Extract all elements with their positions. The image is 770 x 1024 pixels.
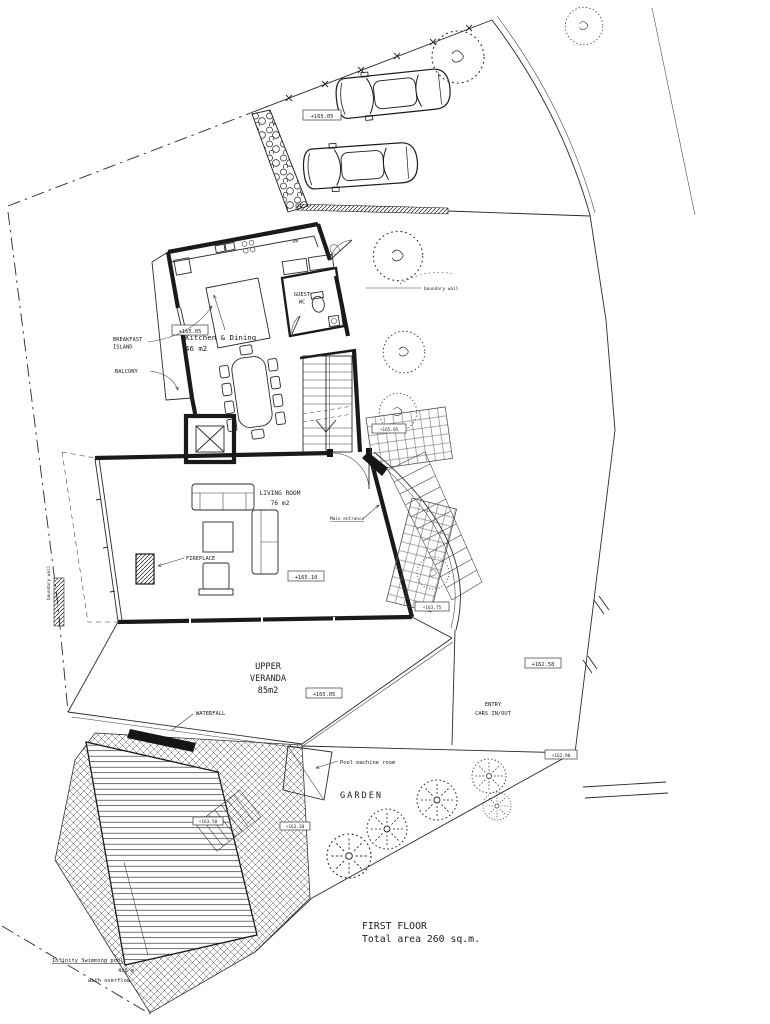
elevation-marker-terrace: +165.05 (372, 424, 406, 433)
sofa-horizontal (192, 484, 254, 510)
elevation-value: +163.30 (286, 824, 305, 830)
retaining-wall (296, 204, 448, 214)
elevation-value: +162.58 (532, 662, 555, 668)
shrub-row-icon (400, 272, 454, 284)
garden-tree-icon (367, 809, 407, 849)
elevation-marker-pool-deck: +163.50 (193, 817, 223, 825)
elevation-value: +165.10 (295, 575, 318, 581)
breakfast-island-label: ISLAND (113, 345, 132, 351)
breakfast-island-label: BREAKFAST (113, 337, 143, 343)
tree-icon (383, 331, 425, 373)
tree-icon (373, 231, 422, 280)
fireplace (136, 554, 154, 584)
garden-tree-icon (417, 780, 457, 820)
boundary-wall-label: boundary wall (46, 565, 52, 600)
car-top-view (302, 138, 419, 194)
balcony-label: BALCONY (115, 369, 138, 375)
elevation-marker-parking: +165.05 (303, 110, 341, 120)
toilet-icon (311, 292, 326, 313)
pool-label: Infinity Swimming pool (52, 958, 123, 964)
pool-machine-room-label: Pool machine room (340, 760, 395, 766)
elevation-marker-living: +165.10 (288, 571, 324, 581)
elevation-marker-driveway: +162.58 (525, 658, 561, 668)
veranda-label: VERANDA (250, 674, 287, 684)
entry-label: ENTRY (485, 702, 502, 708)
fireplace-label: FIREPLACE (186, 556, 215, 562)
drawing-title: FIRST FLOOR Total area 260 sq.m. (362, 921, 480, 945)
title-area: Total area 260 sq.m. (362, 934, 480, 945)
parking-area: +165.05 (252, 64, 590, 216)
garden-tree-icon (327, 834, 371, 878)
coffee-table (203, 522, 233, 552)
kitchen-counter: DW (172, 236, 340, 275)
sofa-vertical (252, 510, 278, 574)
garden-tree-icon (483, 792, 511, 820)
floor-plan-canvas: +165.05 (0, 0, 770, 1024)
pool-overflow-label: with overflow (88, 978, 131, 984)
guest-wc-room: GUEST WC (282, 254, 344, 336)
pool-size-label: 4x8 m (118, 968, 134, 974)
title-floor: FIRST FLOOR (362, 921, 427, 932)
main-entrance-label: Main entrance (330, 516, 365, 522)
elevation-marker-corner: +162.90 (545, 750, 577, 759)
veranda-area-label: 85m2 (258, 686, 279, 696)
staircase (300, 350, 360, 452)
elevation-value: +165.05 (380, 427, 399, 433)
car-top-view (334, 64, 452, 124)
entry-label: CARS IN/OUT (475, 711, 511, 717)
window-wall (95, 459, 122, 622)
veranda-label: UPPER (255, 662, 282, 672)
main-entrance-door (327, 448, 372, 489)
guest-wc-label: GUEST (294, 292, 311, 298)
stone-wall (252, 110, 308, 212)
tree-icon (565, 7, 602, 44)
elevation-marker-veranda: +165.05 (306, 688, 342, 698)
elevation-value: +162.90 (552, 753, 571, 759)
elevation-value: +163.50 (199, 819, 218, 825)
floor-plan-page: +165.05 (0, 0, 770, 1024)
exterior-terrace: +165.05 +163.75 boundary wall (362, 286, 482, 630)
elevation-value: +165.05 (311, 114, 334, 120)
pool-zone: +163.50 +163.30 Infinity Swimming pool 4… (52, 729, 395, 1013)
elevation-marker-landing: +163.75 (415, 602, 449, 611)
waterfall-label: WATERFALL (196, 711, 225, 717)
kitchen-area-label: 46 m2 (185, 344, 207, 353)
living-room: LIVING ROOM 76 m2 FIREPLACE Main entranc… (46, 448, 412, 626)
elevation-value: +163.75 (423, 605, 442, 611)
armchair (199, 563, 233, 595)
dining-table (217, 341, 288, 442)
guest-wc-label: WC (299, 300, 306, 306)
garden-tree-icon (472, 759, 506, 793)
elevation-value: +165.05 (313, 692, 336, 698)
boundary-wall-label: boundary wall (424, 286, 459, 292)
elevation-marker-balcony: +165.05 (172, 325, 208, 335)
tree-icon (432, 31, 484, 83)
garden-label: GARDEN (340, 791, 383, 801)
upper-veranda: UPPER VERANDA 85m2 +165.05 WATERFALL (68, 617, 455, 748)
boundary-wall-segment (54, 578, 64, 626)
elevation-marker-pool-steps: +163.30 (280, 822, 310, 830)
living-room-area-label: 76 m2 (271, 500, 290, 507)
sink-icon (328, 315, 339, 326)
living-room-label: LIVING ROOM (260, 490, 301, 497)
kitchen-dining-room: DW Kitchen & Dining 46 m2 (152, 224, 352, 418)
